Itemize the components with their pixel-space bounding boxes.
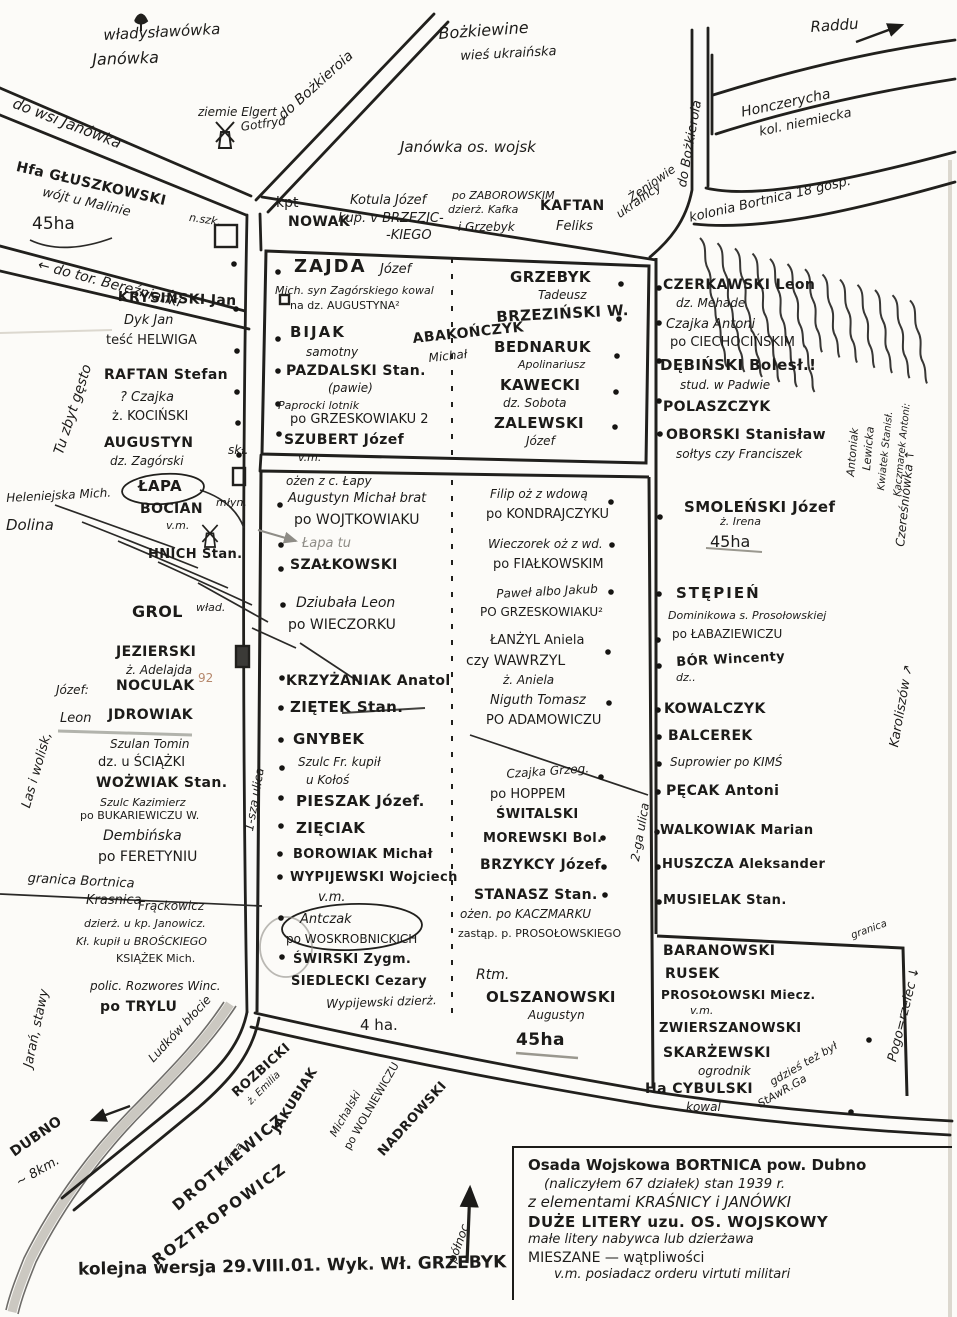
label-lewicka-185: Lewicka <box>861 426 876 471</box>
label-pawie-86: (pawie) <box>328 382 373 395</box>
label-kł-kupił-u-brośckiego-69: Kł. kupił u BROŚCKIEGO <box>76 936 207 948</box>
label-45ha-145: 45ha <box>516 1032 565 1050</box>
label-baranowski-172: BARANOWSKI <box>663 944 775 959</box>
label-szulan-tomin-57: Szulan Tomin <box>110 738 189 751</box>
label-suprowier-po-kimś-167: Suprowier po KIMŚ <box>670 756 783 769</box>
label-janówka-1: Janówka <box>92 50 159 69</box>
label-ożen-z-c-łapy-100: ożen z c. Łapy <box>286 475 372 488</box>
label-rtm-142: Rtm. <box>476 968 509 983</box>
label-łapa-tu-103: Łapa tu <box>302 537 351 551</box>
label-janówka-os-wojsk-8: Janówka os. wojsk <box>400 140 536 156</box>
label-po-feretyniu-63: po FERETYNIU <box>98 850 197 865</box>
label-v-m-116: v.m. <box>318 891 346 905</box>
label-dz-u-ściążki-58: dz. u ŚCIĄŻKI <box>98 756 185 770</box>
label-las-i-wolisk-64: Las i wolisk, <box>20 731 55 810</box>
label-dębiński-bolesł-152: DĘBIŃSKI Bolesł.! <box>660 358 816 374</box>
label-45ha-28: 45ha <box>32 216 75 234</box>
label-bijak-81: BIJAK <box>290 325 346 341</box>
label-v-m-90: v.m. <box>298 452 321 464</box>
scanned-map-page: władysławówkaJanówkado wsi Janówkaziemie… <box>0 0 957 1317</box>
label-dz-sobota-97: dz. Sobota <box>503 397 567 410</box>
label-po-grzeskowiaku-2-88: po GRZESKOWIAKU 2 <box>290 413 429 427</box>
label-władysławówka-0: władysławówka <box>103 22 221 44</box>
label-po-wieczorku-106: po WIECZORKU <box>288 618 396 633</box>
label-pieszak-józef-112: PIESZAK Józef. <box>296 794 425 810</box>
label-dembińska-62: Dembińska <box>103 829 182 844</box>
label-po-grzeskowiaku-128: PO GRZESKOWIAKU² <box>480 606 603 619</box>
label-józef-52: Józef: <box>56 684 89 697</box>
label-po-woskrobnickich-118: po WOSKROBNICKICH <box>286 933 417 946</box>
label-kowalczyk-165: KOWALCZYK <box>664 702 766 717</box>
label-kawecki-96: KAWECKI <box>500 378 580 394</box>
label-polic-rozwores-winc-71: polic. Rozwores Winc. <box>90 980 221 993</box>
label-brzeziński-w-93: BRZEZIŃSKI W. <box>496 303 629 326</box>
label-i-grzebyk-23: i Grzebyk <box>458 221 515 234</box>
label-wypijewski-dzierż-121: Wypijewski dzierż. <box>326 994 437 1010</box>
label-antoniak-184: Antoniak <box>845 427 861 477</box>
label-ziętek-stan-108: ZIĘTEK Stan. <box>290 700 403 716</box>
label-raftan-stefan-34: RAFTAN Stefan <box>104 368 228 383</box>
label-szulc-kazimierz-60: Szulc Kazimierz <box>100 797 186 809</box>
label-wożwiak-stan-59: WOŻWIAK Stan. <box>96 776 227 791</box>
label-karoliszów-189: Karoliszów ↗ <box>888 664 916 749</box>
label-bednaruk-94: BEDNARUK <box>494 340 591 356</box>
label-czajka-35: ? Czajka <box>120 391 174 405</box>
label-stanasz-stan-139: STANASZ Stan. <box>474 888 598 903</box>
label-v-m-175: v.m. <box>690 1005 713 1017</box>
label-u-kołoś-111: u Kołoś <box>306 774 349 787</box>
label-dz-164: dz.. <box>676 672 696 684</box>
label-świtalski-136: ŚWITALSKI <box>496 808 579 822</box>
label-grol-48: GROL <box>132 604 183 621</box>
label-skarżewski-177: SKARŻEWSKI <box>663 1046 771 1061</box>
label-granica-183: granica <box>850 919 889 942</box>
label-jezierski-50: JEZIERSKI <box>116 645 196 660</box>
label-tadeusz-92: Tadeusz <box>538 289 587 302</box>
label-huszcza-aleksander-170: HUSZCZA Aleksander <box>662 858 825 872</box>
label-augustyn-37: AUGUSTYN <box>104 436 193 451</box>
label-kaftan-24: KAFTAN <box>540 199 605 214</box>
label-prosołowski-miecz-174: PROSOŁOWSKI Miecz. <box>661 989 815 1002</box>
label-dominikowa-s-prosołowski-161: Dominikowa s. Prosołowskiej <box>668 610 826 622</box>
legend-line-4: DUŻE LITERY uzu. OS. WOJSKOWY <box>528 1213 952 1233</box>
label-leon-54: Leon <box>60 712 91 726</box>
label-ż-aniela-131: ż. Aniela <box>503 674 554 687</box>
label-2-ga-ulica-147: 2-ga ulica <box>629 802 652 862</box>
label-kiego-20: -KIEGO <box>386 229 432 243</box>
map-legend: Osada Wojskowa BORTNICA pow. Dubno (nali… <box>512 1146 952 1300</box>
label-kolonia-bortnica-18-gosp-15: kolonia Bortnica 18 gosp. <box>688 175 852 226</box>
label-mich-syn-zagórskiego-kow-79: Mich. syn Zagórskiego kowal <box>275 285 434 297</box>
label-raddu-9: Raddu <box>810 17 859 36</box>
label-szubert-józef-89: SZUBERT Józef <box>284 433 404 448</box>
map-labels-layer: władysławówkaJanówkado wsi Janówkaziemie… <box>0 0 957 1317</box>
label-siedlecki-cezary-120: SIEDLECKI Cezary <box>291 975 427 989</box>
label-zalewski-98: ZALEWSKI <box>494 416 584 432</box>
label-dzierż-u-kp-janowicz-68: dzierż. u kp. Janowicz. <box>84 918 206 930</box>
label-czerkawski-leon-148: CZERKAWSKI Leon <box>663 278 815 293</box>
label-kup-v-brzezic-19: kup. v BRZEZIC- <box>338 212 444 226</box>
label-kotula-józef-18: Kotula Józef <box>350 194 426 208</box>
label-po-kondrajczyku-124: po KONDRAJCZYKU <box>486 508 609 522</box>
label-józef-78: Józef <box>380 263 411 277</box>
legend-line-2: (naliczyłem 67 działek) stan 1939 r. <box>528 1176 952 1194</box>
label-filip-oż-z-wdową-123: Filip oż z wdową <box>490 488 588 501</box>
label-musielak-stan-171: MUSIELAK Stan. <box>663 894 787 908</box>
label-zajda-77: ZAJDA <box>294 258 367 277</box>
label-ż-adelajda-51: ż. Adelajda <box>126 664 192 677</box>
label-teść-helwiga-33: teść HELWIGA <box>106 334 197 348</box>
label-do-bożkieroia-10: do Bożkieroia <box>676 99 705 188</box>
label-olszanowski-143: OLSZANOWSKI <box>486 990 616 1006</box>
label-jdrowiak-55: JDROWIAK <box>108 708 193 723</box>
label-pogo-rzelec-190: Pogo=rzelec ↓ <box>886 966 923 1063</box>
label-rusek-173: RUSEK <box>665 967 720 982</box>
label-zastąp-p-prosołowskiego-141: zastąp. p. PROSOŁOWSKIEGO <box>458 928 621 940</box>
label-ż-irena-158: ż. Irena <box>720 516 761 528</box>
label-frąckowicz-67: Frąckowicz <box>138 900 204 913</box>
label-młyn-45: młyn. <box>216 497 247 509</box>
label-zięciak-113: ZIĘCIAK <box>296 821 365 837</box>
label-antczak-117: Antczak <box>300 913 352 927</box>
label-na-dz-augustyna-80: na dz. AUGUSTYNA² <box>290 300 400 312</box>
label-wład-49: wład. <box>196 602 225 614</box>
label-kpt-16: kpt <box>276 196 298 211</box>
label-heleniejska-mich-42: Heleniejska Mich. <box>6 487 111 505</box>
label-krzyżaniak-anatol-107: KRZYŻANIAK Anatol <box>286 674 451 689</box>
label-po-adamowiczu-133: PO ADAMOWICZU <box>486 714 601 728</box>
label-ożen-po-kaczmarku-140: ożen. po KACZMARKU <box>460 908 591 921</box>
label-polaszczyk-154: POLASZCZYK <box>663 400 771 415</box>
label-dz-zagórski-38: dz. Zagórski <box>110 455 184 468</box>
label-dziubała-leon-105: Dziubała Leon <box>296 596 395 611</box>
label-hnich-stan-47: HNICH Stan. <box>148 548 243 562</box>
label-jarań-stawy-73: Jarań, stawy <box>22 988 52 1069</box>
label-po-łabaziewiczu-162: po ŁABAZIEWICZU <box>672 628 782 641</box>
label-niguth-tomasz-132: Niguth Tomasz <box>490 694 586 708</box>
label-michał-84: Michał <box>428 348 468 365</box>
label-smoleński-józef-157: SMOLEŃSKI Józef <box>684 500 835 516</box>
label-grzebyk-91: GRZEBYK <box>510 270 591 286</box>
label-stępień-160: STĘPIEŃ <box>676 586 761 602</box>
label-augustyn-michał-brat-101: Augustyn Michał brat <box>288 492 426 506</box>
label-bocian-43: BOCIAN <box>140 502 203 517</box>
label-wieś-ukraińska-7: wieś ukraińska <box>460 45 557 64</box>
label-4-ha-122: 4 ha. <box>360 1018 398 1034</box>
label-dubno-74: DUBNO <box>8 1114 65 1160</box>
label-dolina-46: Dolina <box>6 518 54 534</box>
label-skł-40: skł. <box>228 444 248 457</box>
label-po-hoppem-135: po HOPPEM <box>490 788 565 802</box>
legend-line-6: MIESZANE — wątpliwości <box>528 1249 952 1267</box>
label-45ha-159: 45ha <box>710 534 750 551</box>
label-bór-wincenty-163: BÓR Wincenty <box>676 650 785 669</box>
label-pęcak-antoni-168: PĘCAK Antoni <box>666 784 779 799</box>
label-po-wojtkowiaku-102: po WOJTKOWIAKU <box>294 513 419 528</box>
label-apolinariusz-95: Apolinariusz <box>518 359 585 371</box>
label-granica-bortnica-65: granica Bortnica <box>27 872 135 891</box>
label-sołtys-czy-franciszek-156: sołtys czy Franciszek <box>676 448 802 461</box>
label-gnybek-109: GNYBEK <box>293 732 364 748</box>
label-czy-wawrzyl-130: czy WAWRZYL <box>466 654 565 669</box>
label-1-sza-ulica-146: 1-sza ulica <box>243 767 267 832</box>
label-wieczorek-oż-z-wd-125: Wieczorek oż z wd. <box>488 538 603 551</box>
label-zwierszanowski-176: ZWIERSZANOWSKI <box>659 1022 802 1036</box>
label-pazdalski-stan-85: PAZDALSKI Stan. <box>286 364 426 379</box>
label-oborski-stanisław-155: OBORSKI Stanisław <box>666 428 826 443</box>
label-bożkiewine-6: Bożkiewine <box>438 20 529 43</box>
label-łapa-41: ŁAPA <box>138 479 182 495</box>
label-samotny-82: samotny <box>306 346 358 359</box>
label-feliks-25: Feliks <box>556 220 593 234</box>
legend-line-5: małe litery nabywca lub dzierżawa <box>528 1232 952 1249</box>
label-walkowiak-marian-169: WALKOWIAK Marian <box>660 824 813 838</box>
label-augustyn-144: Augustyn <box>528 1009 585 1022</box>
label-do-bożkieroia-5: do Bożkieroia <box>276 49 356 123</box>
label-po-fiałkowskim-126: po FIAŁKOWSKIM <box>493 558 604 572</box>
label-ogrodnik-178: ogrodnik <box>698 1065 751 1078</box>
label-paweł-albo-jakub-127: Paweł albo Jakub <box>496 583 598 601</box>
legend-line-7: v.m. posiadacz orderu virtuti militari <box>528 1267 952 1284</box>
label-morewski-bol-137: MOREWSKI Bol. <box>483 832 602 846</box>
label-krysiński-jan-31: KRYSIŃSKI Jan <box>117 290 236 309</box>
label-józef-99: Józef <box>526 435 555 448</box>
label-dyk-jan-32: Dyk Jan <box>124 314 173 328</box>
label-ha-cybulski-179: Ha CYBULSKI <box>645 1082 753 1097</box>
label-balcerek-166: BALCEREK <box>668 729 753 744</box>
label-noculak-53: NOCULAK <box>116 679 195 694</box>
label-wypijewski-wojciech-115: WYPIJEWSKI Wojciech <box>290 871 458 885</box>
legend-line-3: z elementami KRAŚNICY i JANÓWKI <box>528 1193 952 1213</box>
label-szulc-fr-kupił-110: Szulc Fr. kupił <box>298 756 381 769</box>
label-tu-zbyt-gęsto-39: Tu zbyt gęsto <box>52 363 95 457</box>
label-kowal-180: kowal <box>686 1101 721 1114</box>
label-92-56: 92 <box>198 672 213 685</box>
label-v-m-44: v.m. <box>166 520 189 532</box>
label-krasnica-66: Krasnica <box>86 894 142 908</box>
label-po-bukariewiczu-w-61: po BUKARIEWICZU W. <box>80 810 199 822</box>
label-szałkowski-104: SZAŁKOWSKI <box>290 558 398 573</box>
legend-line-1: Osada Wojskowa BORTNICA pow. Dubno <box>528 1156 952 1176</box>
label-łanżyl-aniela-129: ŁANŻYL Aniela <box>490 634 584 648</box>
label-do-wsi-janówka-2: do wsi Janówka <box>10 96 123 152</box>
label-po-trylu-72: po TRYLU <box>100 1000 177 1015</box>
label-czajka-antoni-150: Czajka Antoni <box>666 318 755 332</box>
label-8km-75: ~ 8km. <box>14 1154 62 1190</box>
label-n-szk-29: n.szk. <box>188 212 221 228</box>
label-czajka-grzeg-134: Czajka Grzeg. <box>506 762 590 780</box>
label-książek-mich-70: KSIĄŻEK Mich. <box>116 953 195 965</box>
label-paprocki-lotnik-87: Paprocki lotnik <box>278 400 359 412</box>
label-dzierż-kafka-22: dzierż. Kafka <box>448 204 518 216</box>
label-ż-kociński-36: ż. KOCIŃSKI <box>112 410 188 424</box>
label-brzykcy-józef-138: BRZYKCY Józef <box>480 858 601 873</box>
label-po-ciechocińskim-151: po CIECHOCIŃSKIM <box>670 336 795 350</box>
label-borowiak-michał-114: BOROWIAK Michał <box>293 848 433 862</box>
label-stud-w-padwie-153: stud. w Padwie <box>680 379 770 392</box>
label-świrski-zygm-119: ŚWIRSKI Zygm. <box>293 953 411 967</box>
label-dz-mehade-149: dz. Mehade <box>676 297 745 310</box>
